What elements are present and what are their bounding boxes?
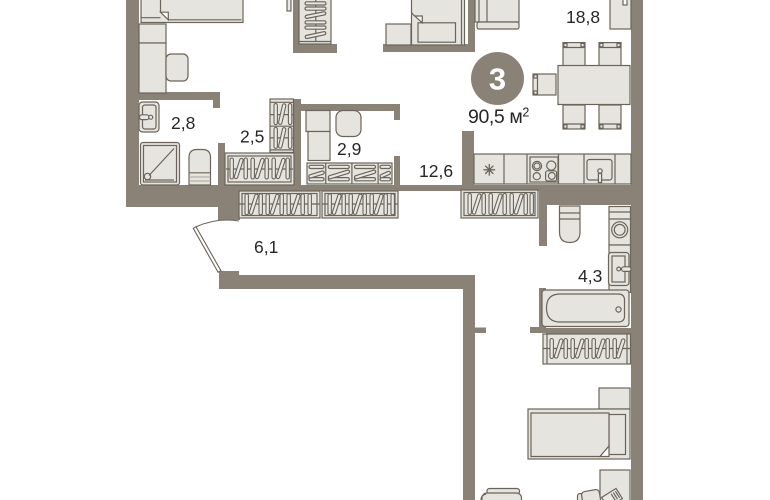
svg-text:2,5: 2,5 — [240, 127, 264, 147]
svg-text:18,8: 18,8 — [566, 7, 600, 27]
svg-text:3: 3 — [489, 62, 506, 97]
svg-text:90,5 м2: 90,5 м2 — [468, 106, 529, 129]
svg-text:12,6: 12,6 — [419, 161, 453, 181]
svg-text:2,8: 2,8 — [171, 113, 195, 133]
svg-text:2,9: 2,9 — [337, 139, 361, 159]
svg-text:6,1: 6,1 — [254, 237, 278, 257]
svg-text:4,3: 4,3 — [578, 266, 602, 286]
